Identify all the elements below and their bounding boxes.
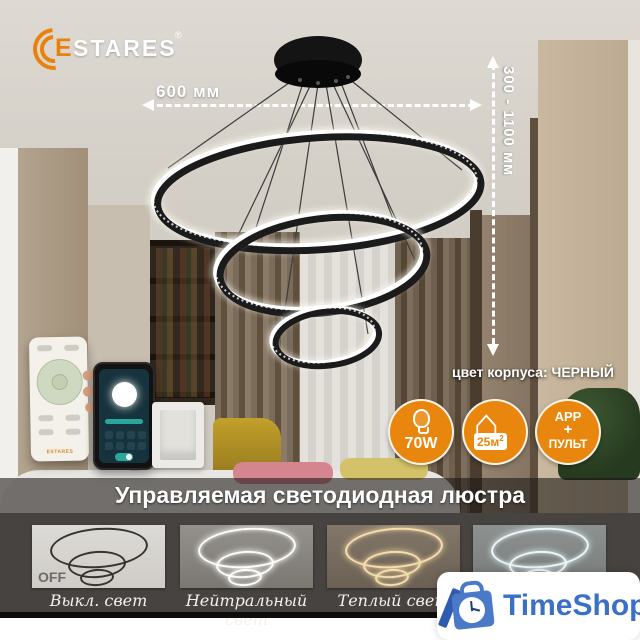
app-key [116, 431, 124, 439]
registered-mark: ® [175, 30, 182, 40]
clock-icon [458, 596, 487, 625]
app-key [138, 442, 146, 450]
suspension-cables [168, 78, 462, 334]
banner-title: Управляемая светодиодная люстра [115, 482, 525, 509]
mini-ring [374, 568, 409, 587]
remote-button [65, 415, 80, 421]
ceiling-canopy [274, 36, 362, 88]
app-screen [99, 369, 149, 463]
logo-text: STARES [73, 35, 177, 62]
body-color-label: цвет корпуса: ЧЕРНЫЙ [452, 364, 614, 380]
app-key [116, 442, 124, 450]
app-toggle [115, 453, 133, 461]
control-badge-line2: + [537, 421, 599, 438]
remote-button [66, 429, 81, 435]
brightness-slider [105, 419, 143, 424]
mini-ring [227, 568, 262, 587]
mode-panel-off: OFF [32, 525, 165, 588]
app-key [138, 431, 146, 439]
app-key [127, 431, 135, 439]
remote-control: ESTARES [29, 337, 89, 462]
mini-ring [79, 568, 114, 587]
smartphone [93, 362, 155, 470]
title-banner: Управляемая светодиодная люстра [0, 478, 640, 513]
light-circle [112, 382, 137, 407]
estares-logo: E STARES ® [33, 26, 183, 70]
app-key [105, 442, 113, 450]
power-badge: 70W [388, 399, 454, 465]
wall-switch [152, 402, 204, 468]
timeshop-logo: TimeShop [437, 572, 640, 640]
product-image: 600 мм 300 - 1100 мм [0, 0, 640, 640]
mode-caption-neutral: Нейтральный свет [180, 591, 313, 629]
off-tag: OFF [38, 569, 66, 585]
app-key [105, 431, 113, 439]
remote-dpad [36, 359, 83, 406]
timeshop-bag-icon [443, 578, 499, 634]
power-badge-label: 70W [390, 435, 452, 453]
remote-button [38, 415, 53, 421]
shopping-bag-icon [451, 590, 495, 630]
control-badge: APP + ПУЛЬТ [535, 399, 601, 465]
remote-button [39, 429, 54, 435]
area-badge: ⌂ 25м2 [462, 399, 528, 465]
mode-panel-neutral [180, 525, 313, 588]
area-badge-label: 25м2 [474, 433, 507, 450]
bulb-icon [413, 409, 430, 428]
mode-caption-off: Выкл. свет [32, 591, 165, 610]
timeshop-name: TimeShop [503, 589, 640, 623]
app-key [127, 442, 135, 450]
remote-brand-label: ESTARES [31, 448, 89, 455]
control-badge-line3: ПУЛЬТ [537, 437, 599, 451]
remote-button [37, 345, 52, 351]
logo-letter: E [55, 34, 72, 63]
remote-button [64, 345, 79, 351]
ring-large [149, 122, 484, 262]
